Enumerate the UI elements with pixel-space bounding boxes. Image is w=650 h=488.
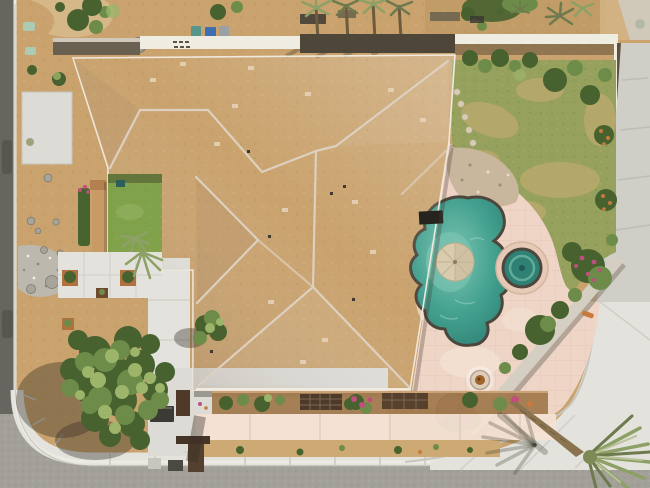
aerial-photo: Aerial drone view of a single-family des… <box>0 0 650 488</box>
utility-box-light <box>148 458 161 469</box>
courtyard-hedge <box>78 185 90 246</box>
street-patch <box>2 140 12 174</box>
spa <box>496 242 548 294</box>
entry-pillar <box>176 390 190 416</box>
concrete-pad <box>22 92 72 164</box>
trellis <box>300 394 342 410</box>
fountain <box>116 180 125 187</box>
shelf-umbrella <box>436 243 474 281</box>
left-street <box>0 0 15 414</box>
trellis-2 <box>382 393 428 409</box>
street-patch <box>2 310 13 338</box>
fire-pit <box>466 366 494 394</box>
utility-box-dark <box>168 460 183 471</box>
aerial-photo-canvas <box>0 0 650 488</box>
parkway-dirt-strip <box>200 440 500 457</box>
